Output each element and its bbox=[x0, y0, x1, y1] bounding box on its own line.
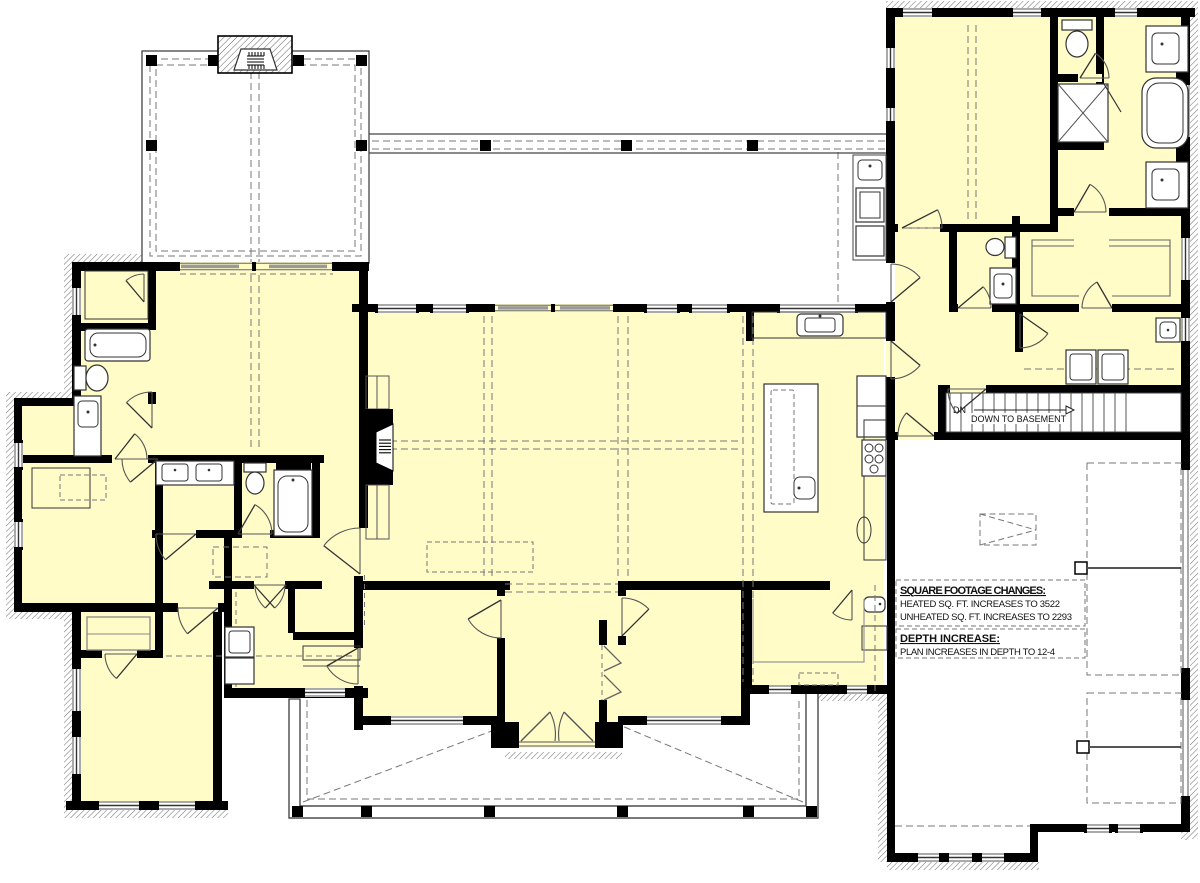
svg-text:SQUARE FOOTAGE CHANGES:: SQUARE FOOTAGE CHANGES: bbox=[900, 585, 1046, 597]
svg-text:HEATED SQ. FT. INCREASES TO 35: HEATED SQ. FT. INCREASES TO 3522 bbox=[900, 599, 1060, 610]
svg-text:PLAN INCREASES IN DEPTH TO 12-: PLAN INCREASES IN DEPTH TO 12-4 bbox=[900, 647, 1055, 658]
svg-text:UNHEATED SQ. FT. INCREASES TO: UNHEATED SQ. FT. INCREASES TO 2293 bbox=[900, 612, 1072, 623]
svg-text:DOWN TO BASEMENT: DOWN TO BASEMENT bbox=[971, 414, 1067, 424]
svg-text:DEPTH INCREASE:: DEPTH INCREASE: bbox=[900, 633, 1000, 645]
